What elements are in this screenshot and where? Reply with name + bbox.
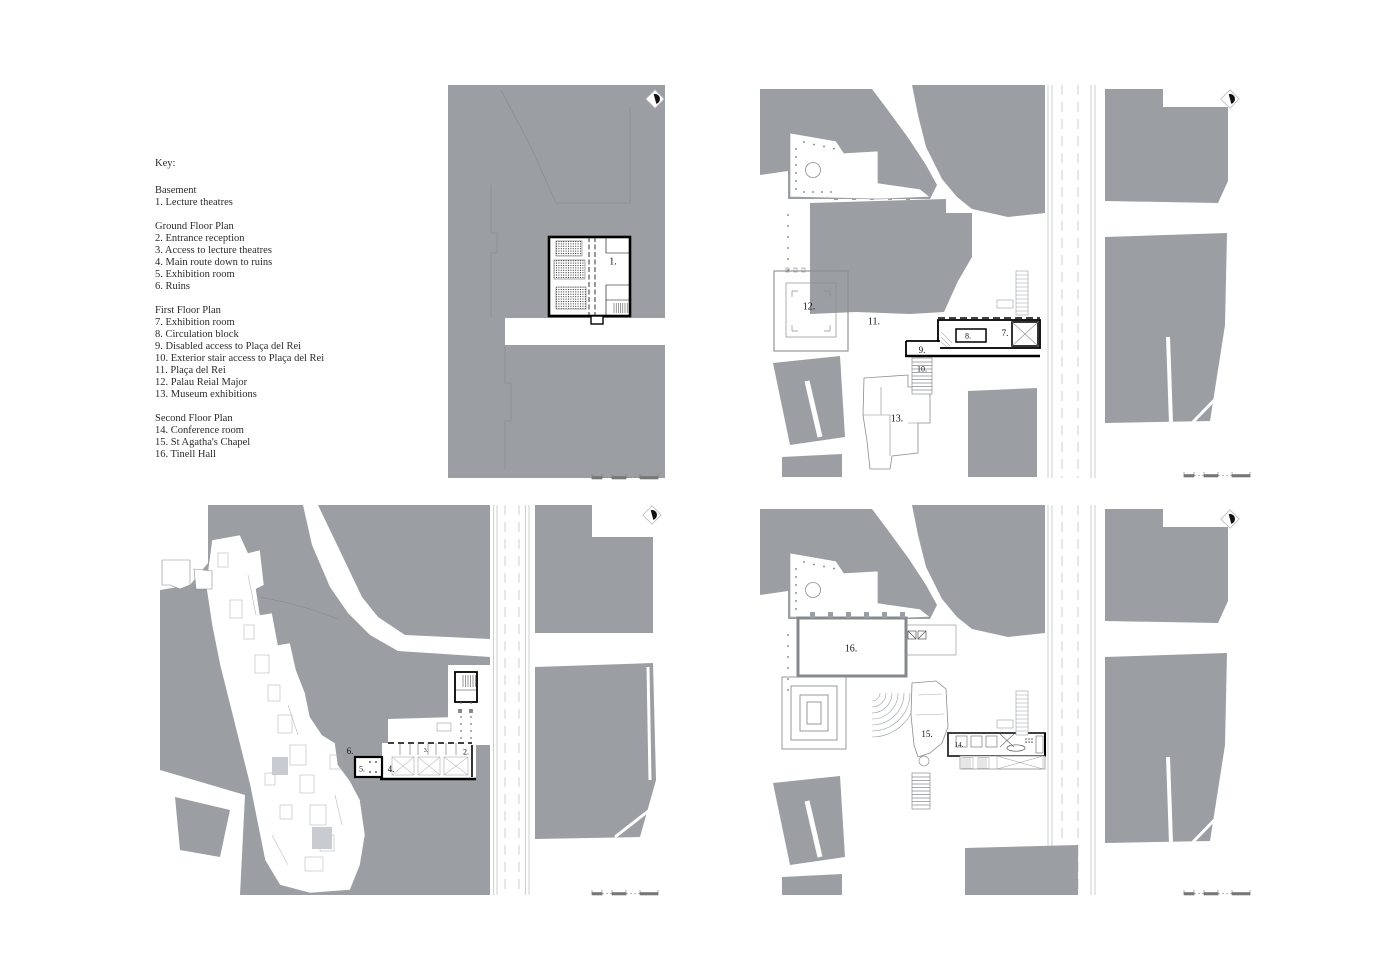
key-item: 8. Circulation block — [155, 329, 405, 341]
key-item: 7. Exhibition room — [155, 317, 405, 329]
key-section: Second Floor Plan14. Conference room15. … — [155, 413, 405, 461]
drawing-sheet: Key: Basement1. Lecture theatresGround F… — [0, 0, 1400, 962]
key-section: First Floor Plan7. Exhibition room8. Cir… — [155, 305, 405, 401]
key-section: Basement1. Lecture theatres — [155, 185, 405, 209]
key-legend: Key: Basement1. Lecture theatresGround F… — [155, 158, 405, 473]
basement-plan: 1. — [448, 85, 665, 478]
key-item: 16. Tinell Hall — [155, 449, 405, 461]
key-title: Key: — [155, 158, 405, 170]
scale-bar — [588, 471, 664, 483]
key-section-heading: Second Floor Plan — [155, 413, 405, 425]
key-item: 14. Conference room — [155, 425, 405, 437]
stair-hatch — [614, 303, 627, 313]
new-build-strip — [905, 318, 1040, 394]
key-item: 13. Museum exhibitions — [155, 389, 405, 401]
second-floor-plan: 16.15.14. — [760, 505, 1245, 895]
key-section-heading: First Floor Plan — [155, 305, 405, 317]
road-markings — [1048, 85, 1095, 478]
scale-bar — [1180, 469, 1256, 481]
key-item: 12. Palau Reial Major — [155, 377, 405, 389]
exterior-stair — [997, 271, 1028, 315]
key-item: 10. Exterior stair access to Plaça del R… — [155, 353, 405, 365]
second-floor-plan-drawing — [760, 505, 1245, 895]
key-item: 4. Main route down to ruins — [155, 257, 405, 269]
exterior-stair-hatch — [912, 773, 930, 809]
scale-bar — [1180, 887, 1256, 899]
city-blocks-east — [535, 505, 656, 839]
key-item: 5. Exhibition room — [155, 269, 405, 281]
fan-arches — [872, 693, 916, 737]
north-arrow-icon — [643, 506, 661, 524]
ground-floor-plan-drawing — [160, 505, 665, 895]
key-section-heading: Basement — [155, 185, 405, 197]
road-markings — [494, 505, 530, 895]
ruin-patch — [312, 827, 332, 849]
ground-floor-plan: 6.5.4.3.2. — [160, 505, 665, 895]
first-floor-plan: 12.11.7.8.9.10.13. — [760, 85, 1245, 478]
tinell-hall — [798, 612, 956, 676]
conference-strip — [948, 733, 1045, 769]
lecture-theatre-block — [549, 237, 630, 324]
excavation-band — [505, 318, 665, 345]
st-agathas-chapel — [911, 681, 948, 766]
key-item: 1. Lecture theatres — [155, 197, 405, 209]
basement-plan-drawing — [448, 85, 665, 478]
stair-10-hatch — [912, 358, 932, 394]
key-item: 15. St Agatha's Chapel — [155, 437, 405, 449]
key-sections: Basement1. Lecture theatresGround Floor … — [155, 185, 405, 461]
north-arrow-icon — [1221, 510, 1239, 528]
skylight — [437, 723, 451, 731]
exterior-stair — [997, 691, 1028, 735]
key-item: 2. Entrance reception — [155, 233, 405, 245]
key-item: 11. Plaça del Rei — [155, 365, 405, 377]
north-arrow-icon — [1221, 90, 1239, 108]
key-item: 6. Ruins — [155, 281, 405, 293]
scale-bar — [588, 887, 664, 899]
adjacent-buildings — [162, 560, 212, 589]
courtyard-spiral — [782, 677, 846, 749]
key-section-heading: Ground Floor Plan — [155, 221, 405, 233]
ruin-patch — [272, 757, 288, 775]
key-item: 3. Access to lecture theatres — [155, 245, 405, 257]
road-markings — [1048, 505, 1095, 895]
first-floor-plan-drawing — [760, 85, 1245, 478]
key-item: 9. Disabled access to Plaça del Rei — [155, 341, 405, 353]
key-section: Ground Floor Plan2. Entrance reception3.… — [155, 221, 405, 293]
